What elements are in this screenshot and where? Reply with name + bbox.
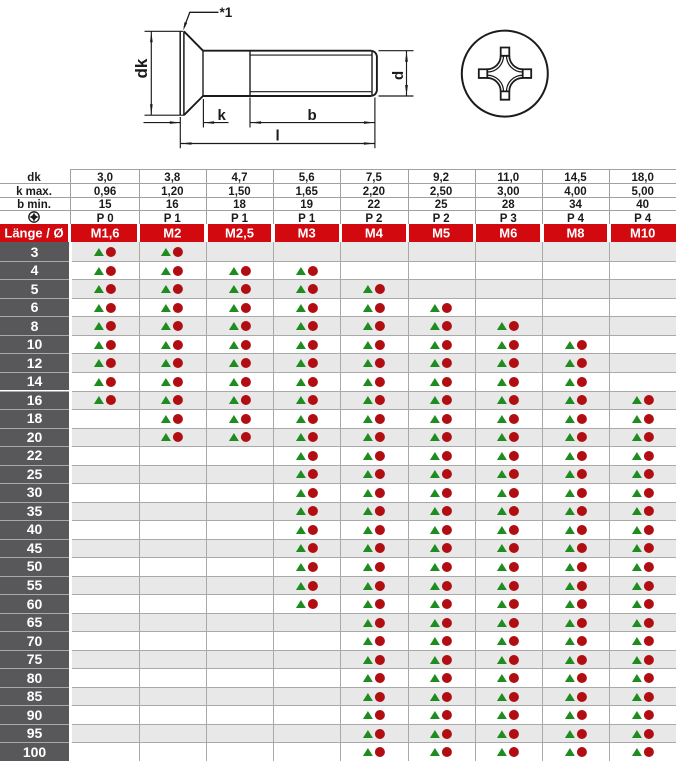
svg-text:*1: *1 — [220, 5, 233, 20]
svg-text:d: d — [390, 71, 407, 80]
svg-text:b: b — [308, 107, 317, 124]
svg-text:l: l — [276, 128, 280, 145]
svg-text:dk: dk — [132, 58, 151, 78]
svg-text:k: k — [218, 107, 227, 124]
